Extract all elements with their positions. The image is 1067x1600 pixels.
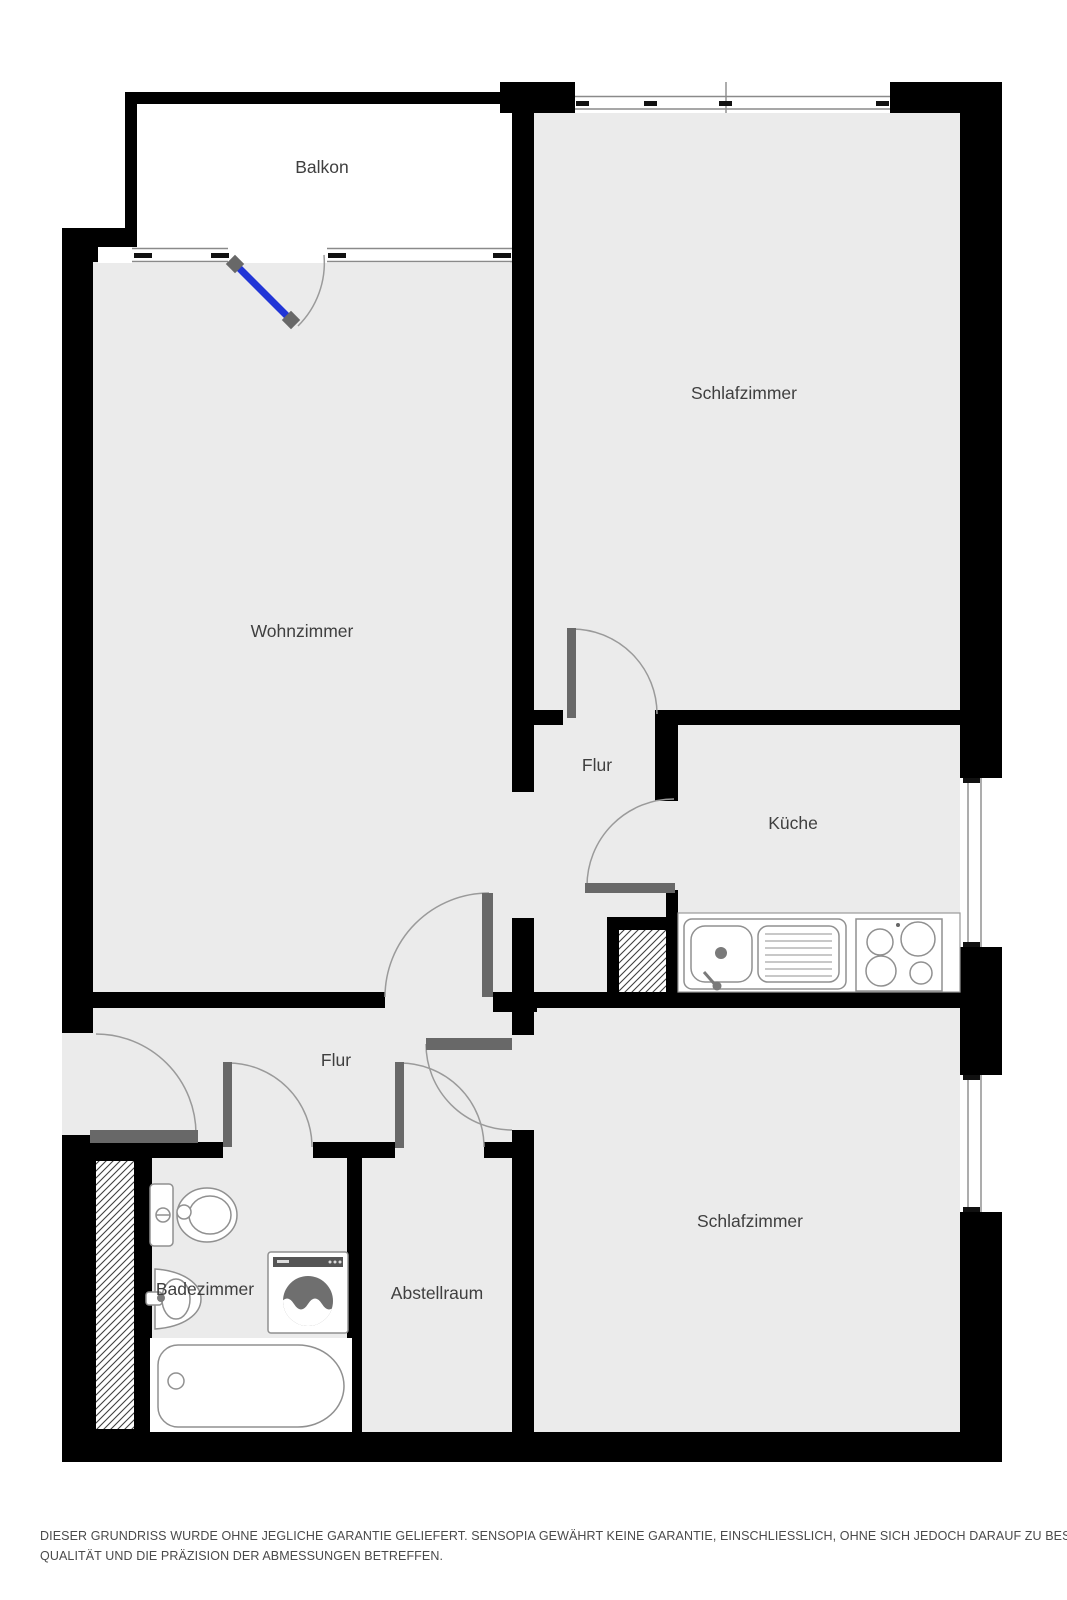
bathtub	[150, 1338, 352, 1432]
wall-mid-vertical-lower	[512, 1130, 534, 1462]
wall-left	[62, 262, 93, 1033]
toilet	[150, 1184, 237, 1246]
bedroom2-door-leaf	[426, 1038, 512, 1050]
room-label-balkon: Balkon	[295, 157, 349, 177]
wall-right-upper	[960, 113, 1002, 712]
entry-shaft-hatch	[96, 1161, 134, 1429]
kitchen-shaft-hatch	[619, 930, 666, 992]
kitchen-stove	[856, 919, 942, 991]
room-label-kueche: Küche	[768, 813, 818, 833]
kitchen-counter	[678, 913, 960, 992]
wall-flur-bath-a	[62, 1142, 223, 1158]
balcony-parapet-top	[125, 92, 512, 104]
kitchen-window	[960, 778, 1002, 947]
wall-right-kitchen	[960, 712, 1002, 778]
wall-shaft-top	[607, 917, 678, 930]
room-label-schlafzimmer-2: Schlafzimmer	[697, 1211, 803, 1231]
balcony-parapet-left	[125, 92, 137, 250]
room-label-schlafzimmer-1: Schlafzimmer	[691, 383, 797, 403]
living-room-door-leaf	[482, 893, 493, 997]
disclaimer-line-2: QUALITÄT UND DIE PRÄZISION DER ABMESSUNG…	[40, 1546, 1050, 1566]
wall-balcony-corner-block	[500, 82, 575, 113]
room-label-abstellraum: Abstellraum	[391, 1283, 483, 1303]
wall-left-lower	[62, 1135, 93, 1462]
wall-flur-bath-c	[484, 1142, 512, 1158]
wall-flur-bath-b	[313, 1142, 395, 1158]
floor-east-wing	[512, 113, 960, 1432]
disclaimer-text: DIESER GRUNDRISS WURDE OHNE JEGLICHE GAR…	[40, 1526, 1050, 1566]
wall-mid-vertical-mid	[512, 918, 534, 1035]
wall-right-lower	[960, 1212, 1002, 1462]
entry-threshold-floor	[62, 1033, 93, 1135]
wall-kitchen-flur	[655, 710, 678, 801]
disclaimer-line-1: DIESER GRUNDRISS WURDE OHNE JEGLICHE GAR…	[40, 1526, 1050, 1546]
storage-door-leaf	[395, 1062, 404, 1148]
bedroom1-windows	[575, 82, 890, 113]
room-label-flur-1: Flur	[582, 755, 612, 775]
wall-right-mid	[960, 947, 1002, 1075]
wall-shaft-right	[666, 890, 678, 992]
entry-door-leaf	[90, 1130, 198, 1143]
room-label-wohnzimmer: Wohnzimmer	[251, 621, 354, 641]
bedroom1-door-leaf	[567, 628, 576, 718]
wall-top-right	[890, 82, 1002, 113]
balcony-window-left	[98, 247, 510, 263]
wall-mid-vertical-upper	[512, 104, 534, 792]
kitchen-door-leaf	[585, 883, 675, 893]
bedroom2-window	[960, 1075, 1002, 1212]
washing-machine	[268, 1252, 348, 1333]
wall-bedroom1-flur-left	[512, 710, 563, 725]
floor-plan-page: Balkon Schlafzimmer Wohnzimmer Flur Küch…	[0, 0, 1067, 1600]
wall-bedroom2-top	[493, 992, 960, 1008]
bathroom-door-leaf	[223, 1062, 232, 1147]
wall-wohnzimmer-flur	[93, 992, 385, 1008]
room-label-badezimmer: Badezimmer	[156, 1279, 254, 1299]
floor-plan: Balkon Schlafzimmer Wohnzimmer Flur Küch…	[0, 0, 1067, 1600]
wall-shaft-left	[607, 930, 619, 992]
room-label-flur-2: Flur	[321, 1050, 351, 1070]
kitchen-sink	[684, 919, 846, 991]
wall-bedroom1-kitchen	[655, 710, 962, 725]
